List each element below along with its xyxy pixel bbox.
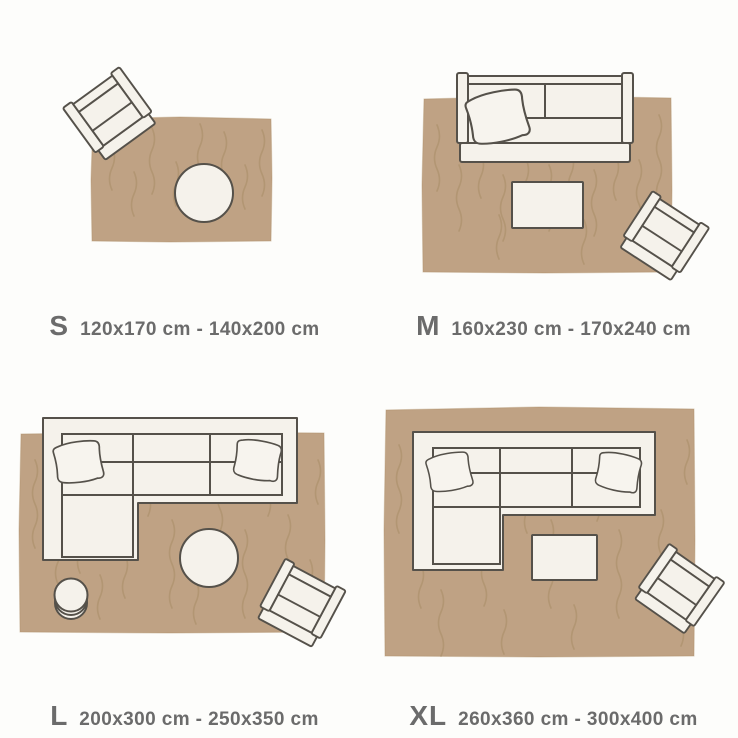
coffee-table [532, 535, 597, 580]
round-side-table [175, 164, 233, 222]
size-letter: L [50, 700, 68, 732]
scene-size-l [0, 390, 369, 675]
size-range: 260x360 cm - 300x400 cm [458, 709, 698, 731]
size-label-xl: XL 260x360 cm - 300x400 cm [369, 700, 738, 732]
scene-size-m [369, 0, 738, 300]
size-letter: M [416, 310, 440, 342]
size-range: 120x170 cm - 140x200 cm [80, 319, 320, 341]
size-letter: XL [409, 700, 447, 732]
size-label-s: S 120x170 cm - 140x200 cm [0, 310, 369, 342]
size-range: 160x230 cm - 170x240 cm [451, 319, 691, 341]
rug-size-guide: S 120x170 cm - 140x200 cm M 160x230 cm -… [0, 0, 738, 738]
size-letter: S [49, 310, 69, 342]
scene-size-s [0, 0, 369, 300]
sofa [457, 73, 633, 162]
scene-size-xl [369, 390, 738, 675]
pouf [55, 579, 88, 620]
size-label-l: L 200x300 cm - 250x350 cm [0, 700, 369, 732]
size-label-m: M 160x230 cm - 170x240 cm [369, 310, 738, 342]
size-range: 200x300 cm - 250x350 cm [79, 709, 319, 731]
coffee-table [512, 182, 583, 228]
pillow [52, 439, 104, 486]
round-coffee-table [180, 529, 238, 587]
